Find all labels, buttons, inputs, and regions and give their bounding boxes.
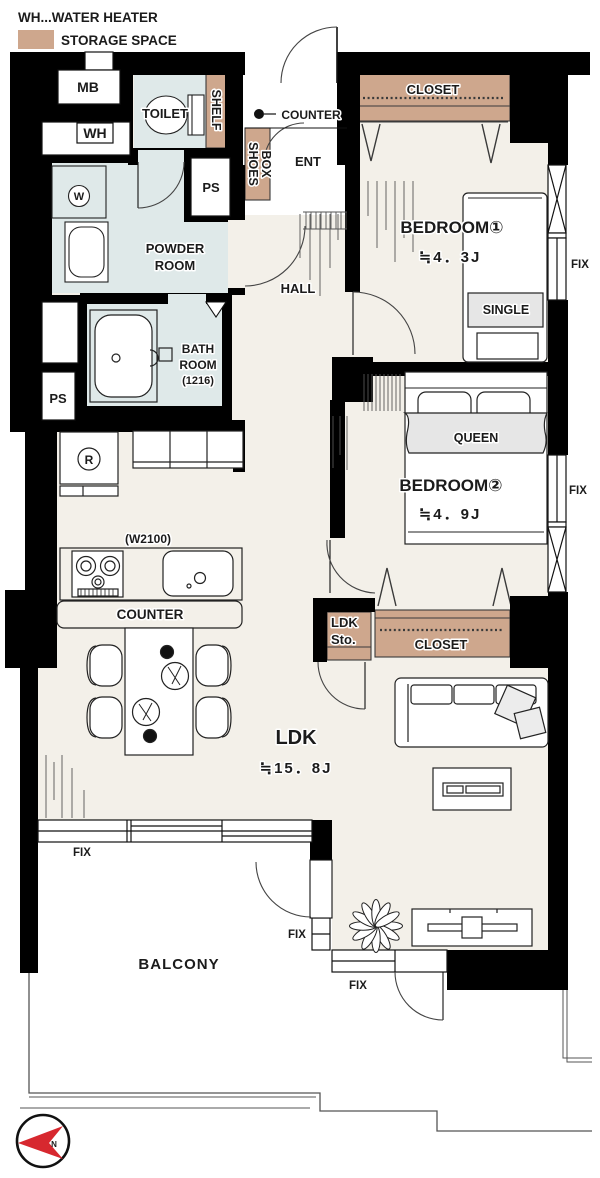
balcony-side-fix-window xyxy=(312,918,330,950)
pipe-space-label-2: PS xyxy=(49,391,67,406)
cup xyxy=(144,730,157,743)
bedroom2-label: BEDROOM② xyxy=(399,476,502,495)
powder-room-label-1: POWDER xyxy=(146,241,205,256)
queen-bed-label: QUEEN xyxy=(454,431,498,445)
cushion xyxy=(514,707,546,739)
refrigerator-label: R xyxy=(85,453,94,467)
powder-sink xyxy=(65,222,108,282)
floorplan-canvas: N WH...WATER HEATER STORAGE SPACE MB WH … xyxy=(0,0,600,1178)
dining-chair xyxy=(196,645,231,686)
north-label: N xyxy=(51,1140,57,1149)
ldk-label: LDK xyxy=(275,727,317,749)
bedroom1-size: ≒4．3J xyxy=(419,249,482,266)
hall-label: HALL xyxy=(281,281,316,296)
water-heater-label: WH xyxy=(83,125,106,141)
shelf-label: SHELF xyxy=(209,90,223,131)
meter-box-label: MB xyxy=(77,79,99,95)
legend-storage: STORAGE SPACE xyxy=(61,33,177,48)
fix-label-1: FIX xyxy=(571,259,589,271)
ldk-bottom-window xyxy=(332,950,447,972)
dining-chair xyxy=(87,697,122,738)
balcony-outline xyxy=(20,973,592,1131)
kitchen-sink xyxy=(163,551,233,596)
dining-chair xyxy=(87,645,122,686)
bathroom-label-1: BATH xyxy=(182,342,214,356)
floorplan-svg: N WH...WATER HEATER STORAGE SPACE MB WH … xyxy=(0,0,600,1178)
bedroom1-label: BEDROOM① xyxy=(400,218,503,237)
utility-box xyxy=(42,302,78,363)
pipe-space-label-1: PS xyxy=(202,180,220,195)
balcony-door-1 xyxy=(256,860,332,918)
coffee-table xyxy=(433,768,511,810)
closet1-label: CLOSET xyxy=(407,82,460,97)
entrance-porch xyxy=(245,52,337,75)
stove xyxy=(72,551,123,597)
ldk-storage-label-1: LDK xyxy=(331,615,358,630)
shoes-box-label-2: BOX xyxy=(259,150,273,178)
balcony-label: BALCONY xyxy=(138,956,219,973)
closet2-label: CLOSET xyxy=(415,637,468,652)
ldk-size: ≒15．8J xyxy=(260,760,333,777)
cup xyxy=(161,646,174,659)
bedroom1-window xyxy=(548,165,566,300)
bathroom-label-2: ROOM xyxy=(179,358,216,372)
balcony-door-2 xyxy=(395,972,443,1020)
porch-notch xyxy=(85,52,113,70)
entrance-label: ENT xyxy=(295,154,321,169)
bathroom-size: (1216) xyxy=(182,375,214,387)
tv-board xyxy=(412,909,532,946)
powder-room-label-2: ROOM xyxy=(155,258,195,273)
bedroom2-window xyxy=(548,455,566,592)
ldk-south-window xyxy=(38,820,312,842)
toilet-label: TOILET xyxy=(142,106,188,121)
legend-water-heater: WH...WATER HEATER xyxy=(18,10,158,25)
shoes-box-label-1: SHOES xyxy=(246,142,260,186)
dining-chair xyxy=(196,697,231,738)
bedroom2-size: ≒4．9J xyxy=(419,506,482,523)
washer-label: W xyxy=(74,191,85,203)
fix-label-2: FIX xyxy=(569,485,587,497)
compass-icon: N xyxy=(17,1115,69,1167)
single-bed-label: SINGLE xyxy=(483,303,530,317)
fix-label-4: FIX xyxy=(288,929,306,941)
fix-label-3: FIX xyxy=(73,847,91,859)
kitchen-counter-label: COUNTER xyxy=(117,607,184,622)
kitchen-cabinets xyxy=(133,431,243,468)
sofa xyxy=(395,678,548,747)
entry-counter-label: COUNTER xyxy=(281,108,341,122)
dining-table xyxy=(125,628,193,755)
ldk-storage-label-2: Sto. xyxy=(331,632,356,647)
fix-label-5: FIX xyxy=(349,980,367,992)
legend-storage-swatch xyxy=(18,30,54,49)
kitchen-width-label: (W2100) xyxy=(125,532,171,546)
legend: WH...WATER HEATER STORAGE SPACE xyxy=(18,10,177,49)
